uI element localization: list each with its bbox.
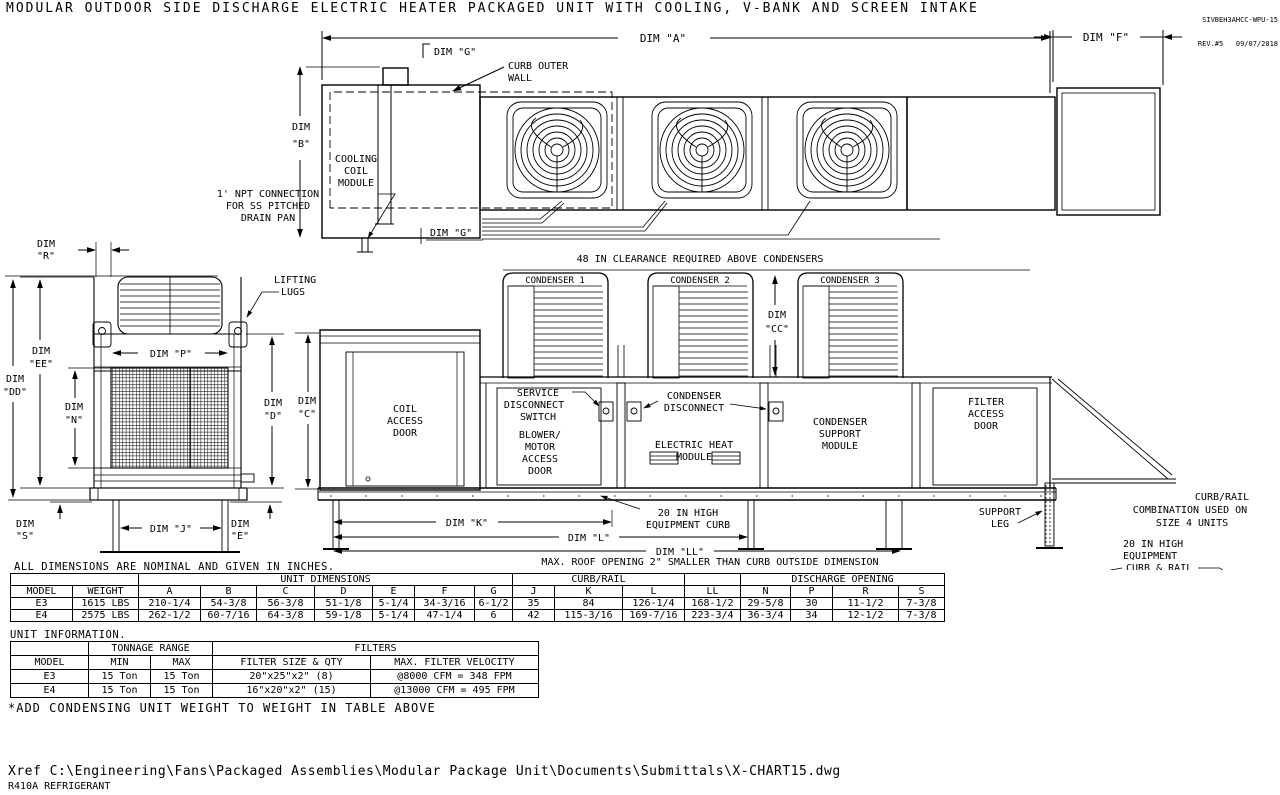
dim-b-label-1: DIM [292,122,310,133]
col-header: G [475,586,513,598]
info-row-e3: E3 15 Ton 15 Ton 20"x25"x2" (8) @8000 CF… [11,670,539,684]
group-blank-ll [685,574,741,586]
dim-e-label-1: DIM [231,519,249,530]
filter-access-line1: FILTER [968,397,1005,408]
condenser-unit-2: CONDENSER 2 [648,273,753,378]
cooling-coil-line1: COOLING [335,154,377,165]
npt-drain-callout: 1' NPT CONNECTION FOR SS PITCHED DRAIN P… [217,189,395,252]
dim-g-top-text: DIM "G" [434,47,476,58]
cell: 42 [513,610,555,622]
cell: 35 [513,598,555,610]
support-leg-line2: LEG [991,519,1009,530]
blower-access-section: SERVICE DISCONNECT SWITCH BLOWER/ MOTOR … [497,388,601,485]
dim-cc-label-1: DIM [768,310,786,321]
condenser-fan-3 [797,102,897,198]
service-disconnect-line3: SWITCH [520,412,556,423]
dim-e-label-2: "E" [231,531,249,542]
cell: 30 [791,598,833,610]
condenser-fan-2 [652,102,752,198]
col-header: B [201,586,257,598]
plan-view: DIM "A" DIM "F" DIM "G" CURB OUTER WALL [217,30,1182,252]
screen-intake-hood [118,277,222,334]
dim-l-dimension: DIM "L" [334,530,747,544]
dim-g-bottom-label: DIM "G" [421,228,483,244]
dim-k-dimension: DIM "K" [334,515,611,529]
filter-access-line3: DOOR [974,421,999,432]
support-leg: SUPPORT LEG [979,483,1063,548]
end-view: DIM "R" LIFTING LUGS [3,239,316,552]
blower-door-line2: MOTOR [525,442,556,453]
cooling-coil-module: COOLING COIL MODULE [330,85,612,224]
filter-access-section: FILTER ACCESS DOOR [933,388,1037,485]
condenser-disconnect-line2: DISCONNECT [664,403,724,414]
cell: 5-1/4 [373,598,415,610]
group-blank [11,642,89,656]
cell: @8000 CFM = 348 FPM [371,670,539,684]
info-row-e4: E4 15 Ton 15 Ton 16"x20"x2" (15) @13000 … [11,684,539,698]
dim-n-label-2: "N" [65,415,83,426]
curb-outer-wall-line2: WALL [508,73,532,84]
roof-opening-note: MAX. ROOF OPENING 2" SMALLER THAN CURB O… [541,557,878,568]
end-dim-j-label: DIM "J" [150,524,192,535]
dim-k-label: DIM "K" [446,518,488,529]
dim-ll-dimension: DIM "LL" [334,544,900,558]
dim-ee-label-1: DIM [32,346,50,357]
condenser-piping [618,345,776,377]
cell: 16"x20"x2" (15) [213,684,371,698]
cell: 11-1/2 [833,598,899,610]
electric-heat-line1: ELECTRIC HEAT [655,440,733,451]
group-curb-rail: CURB/RAIL [513,574,685,586]
dim-dd-dimension: DIM "DD" [3,280,90,500]
service-disconnect-line1: SERVICE [517,388,559,399]
group-filters: FILTERS [213,642,539,656]
col-header: C [257,586,315,598]
cell: 47-1/4 [415,610,475,622]
filter-access-line2: ACCESS [968,409,1004,420]
dim-s-label-2: "S" [16,531,34,542]
cooling-coil-line2: COIL [344,166,368,177]
lifting-lugs-line1: LIFTING [274,275,316,286]
dim-c-dimension: DIM "C" [295,333,319,489]
dim-r-label-2: "R" [37,251,55,262]
curb-rail-label-line2: EQUIPMENT [1123,551,1177,562]
col-header: E [373,586,415,598]
plan-unit-body [322,68,1160,238]
cell: 20"x25"x2" (8) [213,670,371,684]
group-discharge-opening: DISCHARGE OPENING [741,574,945,586]
col-header: F [415,586,475,598]
cell: E3 [11,598,73,610]
npt-note-line1: 1' NPT CONNECTION [217,189,319,200]
dim-dd-label-1: DIM [6,374,24,385]
info-group-row: TONNAGE RANGE FILTERS [11,642,539,656]
dim-c-label-2: "C" [298,409,316,420]
col-header: MIN [89,656,151,670]
curb-outer-wall-line1: CURB OUTER [508,61,569,72]
group-blank [11,574,139,586]
cad-sheet: { "meta": { "title": "MODULAR OUTDOOR SI… [0,0,1280,795]
cell: 126-1/4 [623,598,685,610]
table-header-row: MODEL WEIGHT A B C D E F G J K L LL N P … [11,586,945,598]
npt-note-line3: DRAIN PAN [241,213,295,224]
col-header: P [791,586,833,598]
cooling-coil-line3: MODULE [338,178,374,189]
dim-n-dimension: DIM "N" [65,368,111,468]
equipment-curb-line1: 20 IN HIGH [658,508,718,519]
dim-p-label: DIM "P" [150,349,192,360]
table-row-e3: E3 1615 LBS 210-1/4 54-3/8 56-3/8 51-1/8… [11,598,945,610]
curb-rail-note-line1: CURB/RAIL [1195,492,1249,503]
cell: 12-1/2 [833,610,899,622]
table-group-row: UNIT DIMENSIONS CURB/RAIL DISCHARGE OPEN… [11,574,945,586]
drawing-canvas: DIM "A" DIM "F" DIM "G" CURB OUTER WALL [0,0,1280,570]
cell: 36-3/4 [741,610,791,622]
cell: 34 [791,610,833,622]
condenser-support-line2: SUPPORT [819,429,861,440]
drain-pan-band [94,468,254,482]
cell: E3 [11,670,89,684]
dim-a-dimension: DIM "A" [322,31,1050,93]
dim-r-label-1: DIM [37,239,55,250]
dim-cc-label-2: "CC" [765,324,789,335]
condenser-3-label: CONDENSER 3 [820,276,880,286]
dim-c-label-1: DIM [298,396,316,407]
cell: 15 Ton [89,670,151,684]
curb-outer-wall-callout: CURB OUTER WALL [453,61,569,91]
cell: 115-3/16 [555,610,623,622]
cell: 6 [475,610,513,622]
dim-f-label: DIM "F" [1083,31,1129,44]
dim-l-label: DIM "L" [568,533,610,544]
cell: 1615 LBS [73,598,139,610]
intake-screen-mesh [111,368,228,468]
cell: 210-1/4 [139,598,201,610]
col-header: L [623,586,685,598]
dim-r-dimension: DIM "R" [37,239,129,277]
col-header: K [555,586,623,598]
refrigerant-note: R410A REFRIGERANT [8,781,110,792]
col-header: R [833,586,899,598]
coil-access-line3: DOOR [393,428,418,439]
refrigerant-piping [482,201,940,239]
xref-path: Xref C:\Engineering\Fans\Packaged Assemb… [8,764,841,779]
condenser-support-line3: MODULE [822,441,858,452]
lifting-lugs: LIFTING LUGS [93,275,316,347]
body-roof [480,377,1052,488]
curb-rail-label-line1: 20 IN HIGH [1123,539,1183,550]
cell: @13000 CFM = 495 FPM [371,684,539,698]
group-unit-dimensions: UNIT DIMENSIONS [139,574,513,586]
condenser-2-label: CONDENSER 2 [670,276,730,286]
col-header: LL [685,586,741,598]
condenser-unit-1: CONDENSER 1 [503,273,608,378]
cell: 5-1/4 [373,610,415,622]
col-header: S [899,586,945,598]
dim-b-label-2: "B" [292,139,310,150]
col-header: MAX [151,656,213,670]
dim-g-top-label: DIM "G" [423,44,476,58]
dim-d-label-2: "D" [264,411,282,422]
dim-cc-dimension: DIM "CC" [765,276,789,375]
col-header: A [139,586,201,598]
dimension-table: UNIT DIMENSIONS CURB/RAIL DISCHARGE OPEN… [10,573,945,622]
cell: 34-3/16 [415,598,475,610]
condenser-support-line1: CONDENSER [813,417,868,428]
end-dim-j-dimension: DIM "J" [121,524,221,535]
cell: 60-7/16 [201,610,257,622]
cell: 223-3/4 [685,610,741,622]
condenser-fan-1 [507,102,607,198]
col-header: FILTER SIZE & QTY [213,656,371,670]
dim-d-dimension: DIM "D" [246,334,284,488]
clearance-note: 48 IN CLEARANCE REQUIRED ABOVE CONDENSER… [577,254,824,265]
condenser-unit-3: CONDENSER 3 [798,273,903,378]
dim-ee-dimension: DIM "EE" [20,277,94,488]
col-header: N [741,586,791,598]
lifting-lugs-line2: LUGS [281,287,305,298]
npt-note-line2: FOR SS PITCHED [226,201,310,212]
unit-info-caption: UNIT INFORMATION. [10,629,126,641]
cell: 15 Ton [151,684,213,698]
cell: 56-3/8 [257,598,315,610]
electric-heat-line2: MODULE [676,452,712,463]
blower-door-line1: BLOWER/ [519,430,561,441]
cell: 262-1/2 [139,610,201,622]
cell: 15 Ton [151,670,213,684]
condenser-1-label: CONDENSER 1 [525,276,585,286]
equipment-curb-line2: EQUIPMENT CURB [646,520,730,531]
coil-access-line1: COIL [393,404,417,415]
dim-f-dimension: DIM "F" [1034,30,1182,85]
dim-s-label-1: DIM [16,519,34,530]
cell: 2575 LBS [73,610,139,622]
col-header: MODEL [11,656,89,670]
curb-rail-note-line2: COMBINATION USED ON [1133,505,1247,516]
curb-rail-note-line3: SIZE 4 UNITS [1156,518,1228,529]
dim-e-dimension: DIM "E" [230,502,282,542]
cell: 168-1/2 [685,598,741,610]
dim-dd-label-2: "DD" [3,387,27,398]
weight-footnote: *ADD CONDENSING UNIT WEIGHT TO WEIGHT IN… [8,701,436,715]
cell: E4 [11,684,89,698]
col-header: WEIGHT [73,586,139,598]
service-disconnect-line2: DISCONNECT [504,400,564,411]
info-header-row: MODEL MIN MAX FILTER SIZE & QTY MAX. FIL… [11,656,539,670]
group-tonnage-range: TONNAGE RANGE [89,642,213,656]
cell: 29-5/8 [741,598,791,610]
cell: 7-3/8 [899,598,945,610]
support-leg-line1: SUPPORT [979,507,1021,518]
col-header: D [315,586,373,598]
curb-rail-label-line3: CURB & RAIL [1126,563,1192,570]
unit-info-table: TONNAGE RANGE FILTERS MODEL MIN MAX FILT… [10,641,539,698]
dim-a-label: DIM "A" [640,32,686,45]
coil-access-line2: ACCESS [387,416,423,427]
cell: 7-3/8 [899,610,945,622]
dim-n-label-1: DIM [65,402,83,413]
blower-door-line4: DOOR [528,466,553,477]
condenser-disconnect-line1: CONDENSER [667,391,722,402]
dimensions-note: ALL DIMENSIONS ARE NOMINAL AND GIVEN IN … [14,561,335,573]
condenser-support-section: CONDENSER SUPPORT MODULE [813,417,868,452]
cell: E4 [11,610,73,622]
col-header: MAX. FILTER VELOCITY [371,656,539,670]
electric-heat-section: CONDENSER DISCONNECT ELECTRIC HEAT MODUL… [644,391,766,464]
intake-brace [1052,379,1176,483]
dim-ee-label-2: "EE" [29,359,53,370]
dim-p-dimension: DIM "P" [113,349,227,360]
dim-d-label-1: DIM [264,398,282,409]
coil-access-section: COIL ACCESS DOOR [320,330,480,490]
dim-s-dimension: DIM "S" [16,502,92,542]
col-header: J [513,586,555,598]
cell: 169-7/16 [623,610,685,622]
cell: 6-1/2 [475,598,513,610]
end-base-rail [90,488,247,500]
cell: 51-1/8 [315,598,373,610]
table-row-e4: E4 2575 LBS 262-1/2 60-7/16 64-3/8 59-1/… [11,610,945,622]
cell: 59-1/8 [315,610,373,622]
cell: 84 [555,598,623,610]
cell: 15 Ton [89,684,151,698]
blower-door-line3: ACCESS [522,454,558,465]
col-header: MODEL [11,586,73,598]
dim-g-bottom-text: DIM "G" [430,228,472,239]
cell: 54-3/8 [201,598,257,610]
elevation-view: 48 IN CLEARANCE REQUIRED ABOVE CONDENSER… [295,254,1176,568]
cell: 64-3/8 [257,610,315,622]
